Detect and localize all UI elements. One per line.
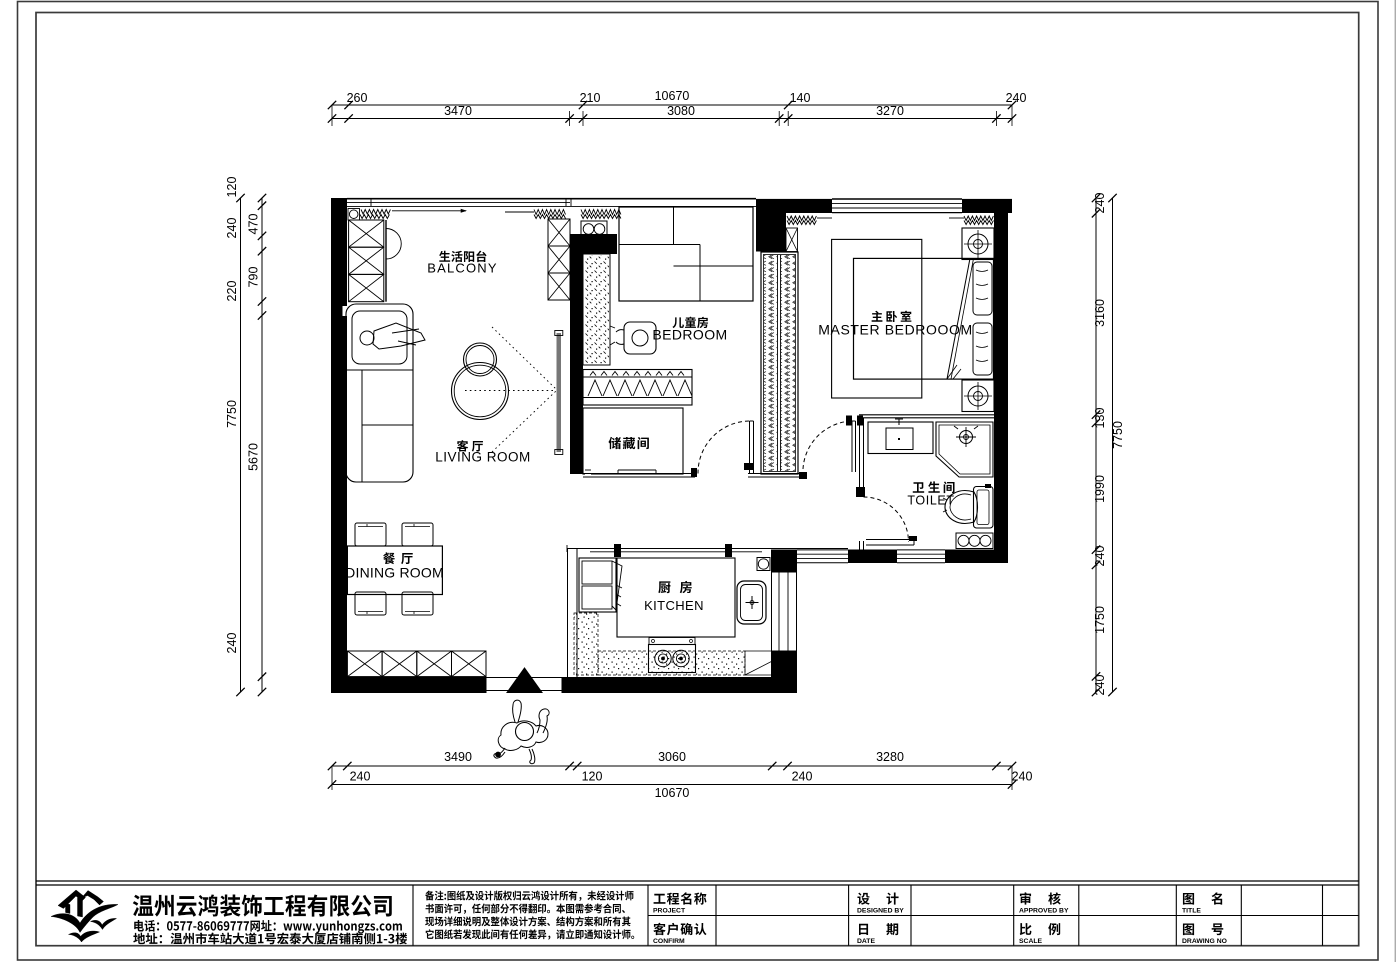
svg-text:7750: 7750 bbox=[1111, 421, 1125, 449]
svg-text:240: 240 bbox=[1006, 91, 1027, 105]
svg-text:DESIGNED BY: DESIGNED BY bbox=[857, 908, 904, 915]
svg-text:240: 240 bbox=[1093, 546, 1107, 567]
svg-text:3490: 3490 bbox=[444, 750, 472, 764]
svg-text:SCALE: SCALE bbox=[1019, 938, 1043, 945]
svg-text:240: 240 bbox=[792, 770, 813, 784]
svg-text:DATE: DATE bbox=[857, 938, 875, 945]
svg-text:240: 240 bbox=[1093, 193, 1107, 214]
svg-text:210: 210 bbox=[580, 91, 601, 105]
svg-text:3060: 3060 bbox=[658, 750, 686, 764]
svg-text:1990: 1990 bbox=[1093, 475, 1107, 503]
svg-text:140: 140 bbox=[790, 91, 811, 105]
svg-text:790: 790 bbox=[247, 267, 261, 288]
svg-text:TOILET: TOILET bbox=[907, 494, 954, 508]
svg-text:260: 260 bbox=[347, 91, 368, 105]
svg-text:TITLE: TITLE bbox=[1182, 908, 1201, 915]
svg-text:470: 470 bbox=[247, 214, 261, 235]
svg-text:CONFIRM: CONFIRM bbox=[653, 938, 685, 945]
svg-text:PROJECT: PROJECT bbox=[653, 908, 686, 915]
svg-text:3080: 3080 bbox=[667, 104, 695, 118]
svg-text:APPROVED BY: APPROVED BY bbox=[1019, 908, 1069, 915]
svg-text:BEDROOM: BEDROOM bbox=[652, 327, 727, 343]
svg-text:MASTER BEDROOOM: MASTER BEDROOOM bbox=[818, 322, 972, 338]
svg-text:3270: 3270 bbox=[876, 104, 904, 118]
svg-text:240: 240 bbox=[225, 218, 239, 239]
svg-text:3280: 3280 bbox=[876, 750, 904, 764]
svg-text:120: 120 bbox=[582, 770, 603, 784]
svg-text:220: 220 bbox=[225, 281, 239, 302]
svg-text:120: 120 bbox=[225, 177, 239, 198]
svg-text:3160: 3160 bbox=[1093, 299, 1107, 327]
svg-text:240: 240 bbox=[225, 633, 239, 654]
svg-text:1750: 1750 bbox=[1093, 606, 1107, 634]
svg-text:240: 240 bbox=[350, 770, 371, 784]
svg-text:5670: 5670 bbox=[247, 443, 261, 471]
svg-text:10670: 10670 bbox=[655, 786, 690, 800]
svg-text:7750: 7750 bbox=[225, 400, 239, 428]
svg-text:130: 130 bbox=[1093, 408, 1107, 429]
svg-text:LIVING ROOM: LIVING ROOM bbox=[435, 450, 531, 465]
svg-text:240: 240 bbox=[1093, 675, 1107, 696]
svg-text:DINING ROOM: DINING ROOM bbox=[345, 565, 444, 581]
svg-text:BALCONY: BALCONY bbox=[427, 261, 498, 276]
svg-text:KITCHEN: KITCHEN bbox=[644, 598, 704, 613]
svg-text:DRAWING NO: DRAWING NO bbox=[1182, 938, 1227, 945]
svg-text:10670: 10670 bbox=[655, 89, 690, 103]
svg-text:3470: 3470 bbox=[444, 104, 472, 118]
